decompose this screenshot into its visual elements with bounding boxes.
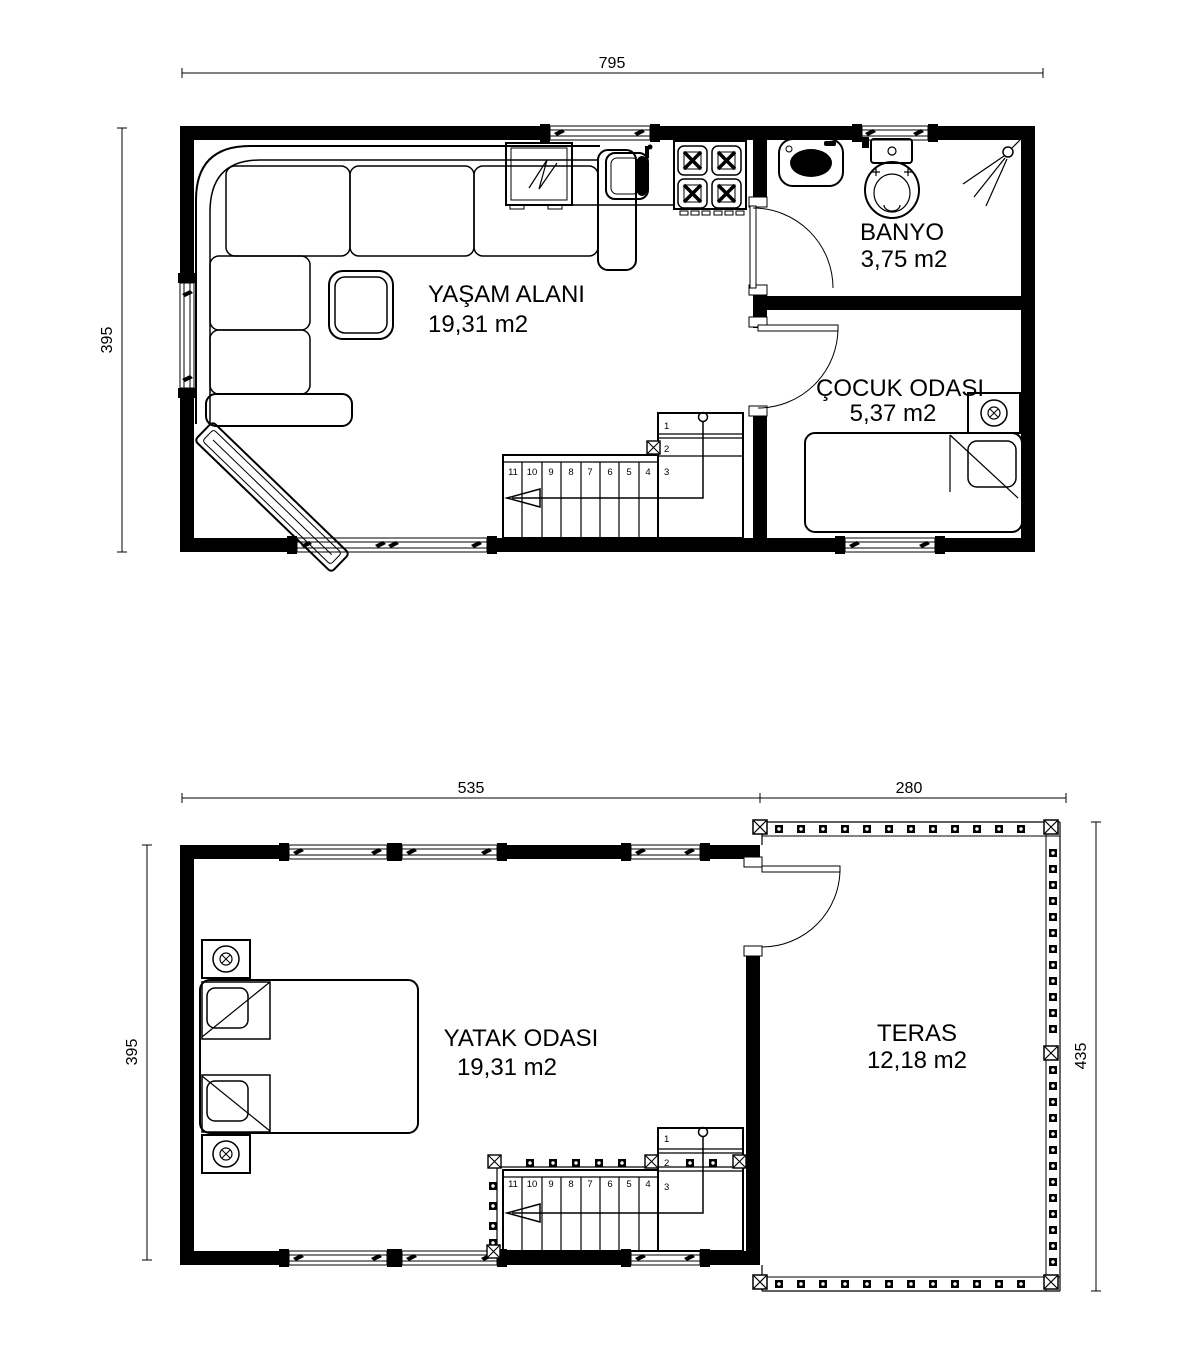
stairs-lower: 11 10 9 8 7 6 5 4 1 2 3 — [487, 1128, 746, 1259]
railing-post — [1049, 945, 1057, 953]
kitchen-sink — [606, 145, 653, 200]
upper-floor-plan: 795 395 — [99, 55, 1043, 572]
stair-step-label: 1 — [664, 1134, 669, 1145]
railing-post — [841, 1280, 849, 1288]
stair-post-icon — [645, 1155, 658, 1168]
stove-knobs — [680, 211, 744, 215]
stair-step-label: 10 — [527, 1179, 538, 1190]
window-living-bottom — [287, 536, 497, 554]
room-area-living: 19,31 m2 — [428, 311, 528, 338]
railing-post — [1049, 1025, 1057, 1033]
railing-post — [929, 825, 937, 833]
dimension-top-upper: 795 — [182, 55, 1043, 78]
railing-post — [929, 1280, 937, 1288]
railing-post — [1049, 897, 1057, 905]
railing-post — [1049, 913, 1057, 921]
stair-step-label: 4 — [645, 467, 650, 478]
room-label-kids: ÇOCUK ODASI — [816, 375, 984, 402]
lower-floor-plan: 535 280 395 435 — [124, 780, 1101, 1291]
room-area-bathroom: 3,75 m2 — [861, 246, 948, 273]
stair-step-label: 10 — [527, 467, 538, 478]
railing-post — [1017, 825, 1025, 833]
railing-post — [797, 1280, 805, 1288]
stair-step-label: 4 — [645, 1179, 650, 1190]
stair-step-label: 9 — [548, 1179, 553, 1190]
railing-post — [1049, 1210, 1057, 1218]
railing-post — [1049, 849, 1057, 857]
window-bedroom-bottom-1 — [279, 1249, 402, 1267]
railing-post — [1049, 961, 1057, 969]
railing-post — [995, 825, 1003, 833]
railing-post — [1049, 977, 1057, 985]
railing-post — [951, 1280, 959, 1288]
stair-post-icon — [733, 1155, 746, 1168]
dimension-right-lower: 435 — [1073, 822, 1101, 1291]
stair-step-label: 2 — [664, 444, 669, 455]
stove-burner-icon — [678, 146, 707, 175]
stair-step-label: 11 — [508, 1179, 518, 1190]
railing-post — [1049, 1162, 1057, 1170]
terrace-corner-post-icon — [753, 820, 767, 834]
shower-head-icon — [963, 140, 1020, 206]
stair-step-label: 6 — [607, 1179, 612, 1190]
railing-post — [1049, 1226, 1057, 1234]
railing-post — [1049, 929, 1057, 937]
railing-post — [1049, 1146, 1057, 1154]
railing-post — [1049, 1082, 1057, 1090]
room-labels-lower: YATAK ODASI 19,31 m2 TERAS 12,18 m2 — [444, 1020, 967, 1081]
window-bedroom-top-3 — [621, 843, 710, 861]
railing-post — [618, 1159, 626, 1167]
stair-step-label: 7 — [587, 467, 592, 478]
window-bedroom-top-1 — [279, 843, 402, 861]
stair-step-label: 1 — [664, 421, 669, 432]
lamp-icon — [981, 400, 1007, 426]
stair-step-label: 7 — [587, 1179, 592, 1190]
terrace-corner-post-icon — [753, 1275, 767, 1289]
double-bed — [200, 980, 418, 1133]
railing-post — [1049, 1009, 1057, 1017]
railing-post — [1049, 1258, 1057, 1266]
exterior-walls-upper — [180, 126, 1035, 552]
railing-post — [489, 1182, 497, 1190]
railing-post — [907, 825, 915, 833]
room-area-terrace: 12,18 m2 — [867, 1047, 967, 1074]
railing-post — [1017, 1280, 1025, 1288]
stair-step-label: 9 — [548, 467, 553, 478]
dimension-label: 395 — [99, 327, 116, 354]
railing-post — [1049, 865, 1057, 873]
stair-step-label: 8 — [568, 1179, 573, 1190]
railing-post — [885, 1280, 893, 1288]
terrace-corner-post-icon — [1044, 1275, 1058, 1289]
railing-post — [1049, 1066, 1057, 1074]
door-terrace — [744, 857, 840, 956]
stove-burner-icon — [712, 146, 741, 175]
railing-post — [863, 1280, 871, 1288]
stairs-upper: 11 10 9 8 7 6 5 4 1 2 3 — [503, 413, 743, 539]
terrace-corner-post-icon — [1044, 1046, 1058, 1060]
coffee-table — [329, 271, 393, 339]
stair-step-label: 11 — [508, 467, 518, 478]
dimension-left-upper: 395 — [99, 128, 127, 552]
railing-post — [1049, 1098, 1057, 1106]
railing-post — [489, 1222, 497, 1230]
stair-step-label: 5 — [626, 1179, 631, 1190]
terrace-posts-top — [775, 825, 1025, 833]
railing-post — [1049, 993, 1057, 1001]
stair-step-label: 6 — [607, 467, 612, 478]
dimension-label: 395 — [124, 1039, 141, 1066]
window-bedroom-top-2 — [402, 843, 507, 861]
railing-post — [595, 1159, 603, 1167]
room-label-terrace: TERAS — [877, 1020, 957, 1047]
nightstand-bedroom-top — [202, 940, 250, 978]
stair-post-icon — [647, 441, 660, 454]
terrace-posts-bottom — [775, 1280, 1025, 1288]
stove-burner-icon — [678, 179, 707, 208]
railing-post — [841, 825, 849, 833]
single-bed — [805, 433, 1022, 532]
window-living-left — [178, 273, 196, 398]
stair-step-label: 3 — [664, 467, 669, 478]
stair-post-icon — [488, 1155, 501, 1168]
stove — [674, 141, 746, 215]
lamp-icon — [213, 1141, 239, 1167]
nightstand-bedroom-bottom — [202, 1135, 250, 1173]
door-bathroom — [749, 197, 833, 295]
stair-step-label: 8 — [568, 467, 573, 478]
toilet — [862, 137, 919, 218]
dimension-top-lower: 535 280 — [182, 780, 1066, 803]
railing-post — [907, 1280, 915, 1288]
floor-plan-canvas: 795 395 — [0, 0, 1200, 1358]
bathroom-sink — [779, 139, 843, 186]
stair-step-label: 3 — [664, 1182, 669, 1193]
interior-walls-upper — [753, 140, 1021, 538]
room-label-bedroom: YATAK ODASI — [444, 1025, 599, 1052]
railing-post — [973, 825, 981, 833]
room-label-bathroom: BANYO — [860, 219, 944, 246]
railing-post — [1049, 1178, 1057, 1186]
stair-step-label: 2 — [664, 1158, 669, 1169]
window-living-top — [540, 124, 660, 142]
railing-post — [863, 825, 871, 833]
railing-post — [1049, 1114, 1057, 1122]
railing-post — [819, 1280, 827, 1288]
stove-burner-icon — [712, 179, 741, 208]
terrace-corner-post-icon — [1044, 820, 1058, 834]
dimension-label: 280 — [896, 780, 923, 797]
railing-post — [951, 825, 959, 833]
window-kids-bottom — [835, 536, 945, 554]
railing-post — [1049, 881, 1057, 889]
room-label-living: YAŞAM ALANI — [428, 281, 585, 308]
dimension-label: 435 — [1073, 1043, 1090, 1070]
railing-post — [1049, 1242, 1057, 1250]
room-area-bedroom: 19,31 m2 — [457, 1054, 557, 1081]
railing-post — [709, 1159, 717, 1167]
railing-post — [1049, 1130, 1057, 1138]
railing-post — [819, 825, 827, 833]
railing-post — [797, 825, 805, 833]
room-labels-upper: YAŞAM ALANI 19,31 m2 BANYO 3,75 m2 ÇOCUK… — [428, 219, 984, 427]
dimension-label: 795 — [599, 55, 626, 72]
railing-post — [686, 1159, 694, 1167]
kitchen-cabinet — [506, 143, 572, 209]
stair-post-icon — [487, 1245, 500, 1258]
room-area-kids: 5,37 m2 — [850, 400, 937, 427]
railing-post — [1049, 1194, 1057, 1202]
railing-post — [526, 1159, 534, 1167]
stair-step-label: 5 — [626, 467, 631, 478]
lamp-icon — [213, 946, 239, 972]
railing-post — [775, 825, 783, 833]
railing-post — [775, 1280, 783, 1288]
dimension-left-lower: 395 — [124, 845, 152, 1260]
railing-post — [885, 825, 893, 833]
railing-post — [489, 1202, 497, 1210]
dimension-label: 535 — [458, 780, 485, 797]
railing-post — [973, 1280, 981, 1288]
railing-post — [549, 1159, 557, 1167]
stair-step-labels-upper: 11 10 9 8 7 6 5 4 1 2 3 — [508, 421, 669, 478]
railing-post — [995, 1280, 1003, 1288]
railing-post — [572, 1159, 580, 1167]
